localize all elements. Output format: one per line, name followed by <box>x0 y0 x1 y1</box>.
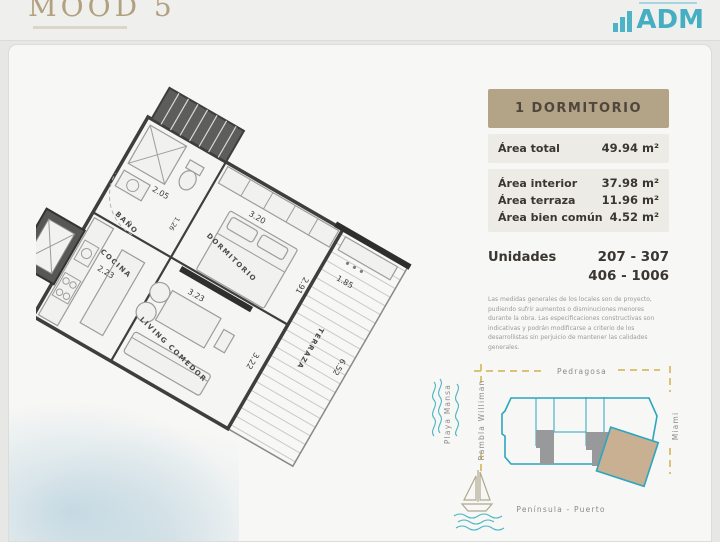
top-bar: MOOD 5 ADM <box>0 0 720 41</box>
site-map: Pedragosa Rambla Williman Playa Mansa Mi… <box>426 354 712 540</box>
water-playa-mansa: Playa Mansa <box>443 384 452 444</box>
adm-logo: ADM <box>613 2 704 35</box>
area-row: Área interior 37.98 m² <box>498 175 659 192</box>
area-interior-value: 37.98 m² <box>602 175 659 192</box>
unit-title: 1 DORMITORIO <box>488 89 669 128</box>
area-bien-comun-value: 4.52 m² <box>610 209 659 226</box>
mood-logo-tagline <box>33 26 127 29</box>
area-bien-comun-label: Área bien común <box>498 209 603 226</box>
area-interior-label: Área interior <box>498 175 577 192</box>
street-pedragosa: Pedragosa <box>557 367 607 376</box>
water-wave <box>433 382 436 436</box>
unidades-section: Unidades 207 - 307 406 - 1006 <box>488 248 669 286</box>
water-wave <box>439 379 442 433</box>
sailboat-icon <box>454 470 504 530</box>
area-terraza-value: 11.96 m² <box>602 192 659 209</box>
unidades-label: Unidades <box>488 248 556 286</box>
unidades-range-2: 406 - 1006 <box>588 267 669 286</box>
area-detail-box: Área interior 37.98 m² Área terraza 11.9… <box>488 169 669 232</box>
legal-disclaimer: Las medidas generales de los locales son… <box>488 295 660 353</box>
adm-wordmark: ADM <box>636 5 704 35</box>
area-row: Área bien común 4.52 m² <box>498 209 659 226</box>
floor-plan: BAÑO COCINA DORMITORIO LIVING COMEDOR TE… <box>36 71 456 511</box>
mood-logo: MOOD 5 <box>28 0 176 23</box>
adm-bars-icon <box>613 11 632 35</box>
area-total-label: Área total <box>498 140 560 157</box>
street-miami: Miami <box>671 412 680 441</box>
adm-logo-subtext <box>639 2 697 4</box>
highlighted-unit <box>536 430 554 464</box>
content-card: BAÑO COCINA DORMITORIO LIVING COMEDOR TE… <box>8 44 712 542</box>
street-rambla-williman: Rambla Williman <box>477 379 486 460</box>
area-terraza-label: Área terraza <box>498 192 575 209</box>
building-block <box>502 397 658 486</box>
area-total-value: 49.94 m² <box>602 140 659 157</box>
area-row: Área terraza 11.96 m² <box>498 192 659 209</box>
area-total-box: Área total 49.94 m² <box>488 134 669 163</box>
water-wave <box>456 384 459 436</box>
brochure-page: MOOD 5 ADM <box>0 0 720 540</box>
area-peninsula-puerto: Península - Puerto <box>516 505 605 514</box>
unit-info-panel: 1 DORMITORIO Área total 49.94 m² Área in… <box>488 89 669 353</box>
unidades-range-1: 207 - 307 <box>588 248 669 267</box>
